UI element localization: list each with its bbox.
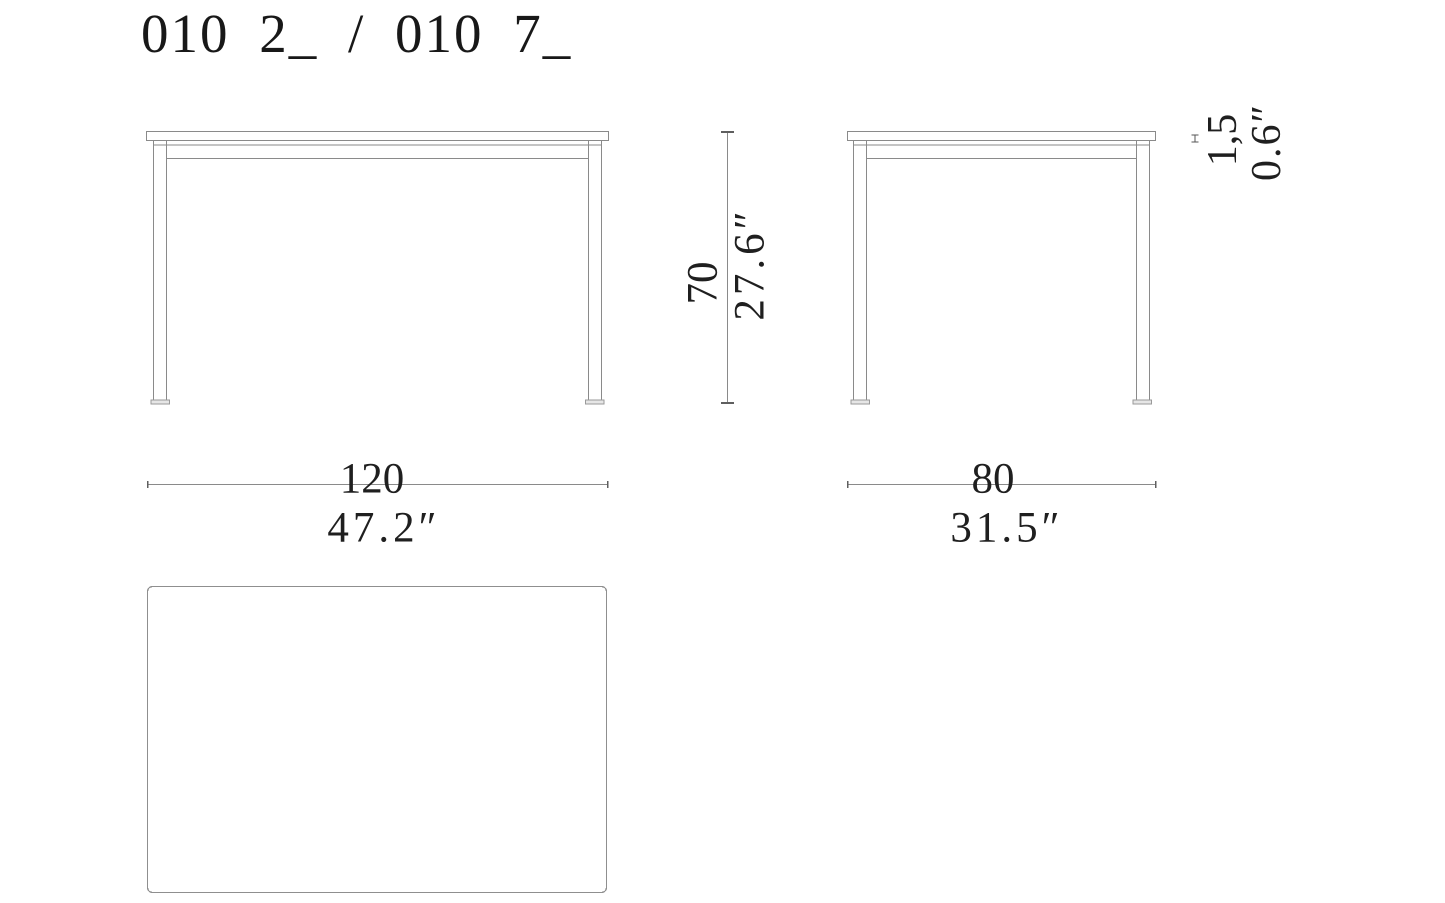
top-plan-view bbox=[148, 587, 607, 893]
width-dim-inch-label: 47.2″ bbox=[327, 507, 440, 550]
height-dim-inch-label: 27.6″ bbox=[729, 207, 772, 320]
right-foot bbox=[586, 400, 605, 404]
tabletop-front bbox=[147, 132, 609, 141]
left-foot bbox=[151, 400, 170, 404]
depth-dim-inch-label: 31.5″ bbox=[950, 507, 1063, 550]
front-view bbox=[147, 132, 609, 405]
product-code-title: 010 2_ / 010 7_ bbox=[141, 6, 572, 61]
tabletop-side bbox=[848, 132, 1156, 141]
drawing-sheet: 010 2_ / 010 7_ 120 47.2″ 80 31.5″ 70 27… bbox=[0, 0, 1445, 903]
height-dim-cm-label: 70 bbox=[682, 262, 725, 305]
thickness-dim-inch-label: 0.6″ bbox=[1246, 103, 1288, 181]
depth-dim-cm-label: 80 bbox=[972, 458, 1015, 501]
thickness-dim-cm-label: 1,5 bbox=[1202, 114, 1244, 167]
right-foot bbox=[1133, 400, 1152, 404]
tabletop-outline bbox=[148, 587, 607, 893]
width-dim-cm-label: 120 bbox=[340, 458, 405, 501]
left-foot bbox=[851, 400, 870, 404]
thickness-dimension-mark bbox=[1192, 135, 1199, 142]
side-view bbox=[848, 132, 1156, 405]
